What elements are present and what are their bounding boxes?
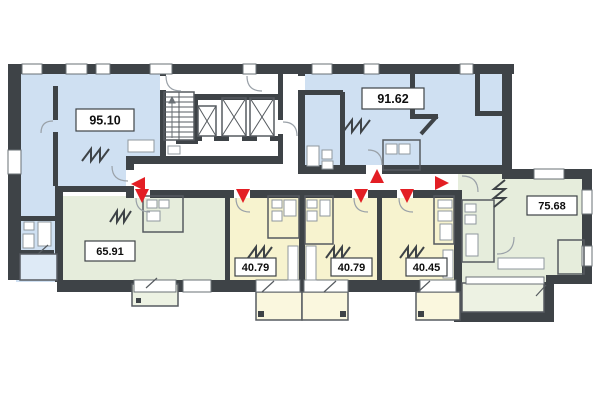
area-value-apt-91: 91.62 bbox=[377, 92, 408, 106]
elevators bbox=[198, 98, 274, 136]
area-value-apt-65: 65.91 bbox=[96, 246, 124, 258]
area-label-apt-95: 95.10 bbox=[76, 109, 134, 131]
elevator-small bbox=[198, 106, 216, 136]
elevator-large-1 bbox=[222, 98, 246, 136]
entrance-arrow-right-apt-75 bbox=[435, 176, 449, 190]
staircase bbox=[164, 92, 194, 140]
area-value-apt-75: 75.68 bbox=[538, 201, 566, 213]
balcony-apt-75 bbox=[462, 283, 544, 312]
floor-plan-drawing: 95.10 91.62 65.91 40.79 40.79 40.45 75.6… bbox=[0, 0, 600, 400]
elevator-large-2 bbox=[250, 98, 274, 136]
area-value-apt-40c: 40.45 bbox=[413, 262, 441, 274]
area-value-apt-40b: 40.79 bbox=[338, 262, 366, 274]
area-value-apt-95: 95.10 bbox=[89, 114, 120, 128]
area-label-apt-65: 65.91 bbox=[85, 241, 135, 261]
area-label-apt-40a: 40.79 bbox=[235, 258, 276, 276]
floor-plan: 95.10 91.62 65.91 40.79 40.79 40.45 75.6… bbox=[0, 0, 600, 400]
area-label-apt-91: 91.62 bbox=[362, 88, 424, 109]
area-label-apt-40b: 40.79 bbox=[331, 258, 372, 276]
area-label-apt-40c: 40.45 bbox=[406, 258, 447, 276]
balcony-apt-95 bbox=[20, 254, 57, 280]
area-label-apt-75: 75.68 bbox=[527, 196, 577, 215]
area-value-apt-40a: 40.79 bbox=[242, 262, 270, 274]
